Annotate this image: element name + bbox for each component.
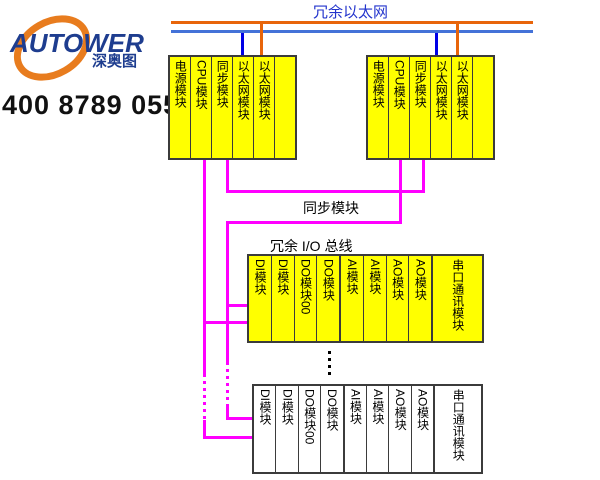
service-phone-number: 400 8789 055 bbox=[2, 90, 179, 121]
controller-rack-a: 电源模块 CPU模块 同步模块 以太网模块 以太网模块 bbox=[168, 55, 297, 160]
io-bus-b-vertical bbox=[226, 221, 229, 362]
sync-link-drop-a bbox=[226, 160, 229, 191]
module-label: AI模块 bbox=[349, 389, 362, 424]
module-label: DI模块 bbox=[276, 259, 289, 295]
module-label: 以太网模块 bbox=[258, 60, 271, 120]
ethernet-drop-blue-b bbox=[435, 33, 438, 56]
module-label: AI模块 bbox=[346, 259, 359, 294]
module-ethernet-a2: 以太网模块 bbox=[254, 57, 275, 158]
io-bus-a-vertical bbox=[203, 160, 206, 374]
module-label: 串口通讯模块 bbox=[452, 389, 465, 461]
module-ai-2: AI模块 bbox=[364, 256, 387, 341]
module-sync-a: 同步模块 bbox=[212, 57, 233, 158]
module-label: 电源模块 bbox=[174, 60, 187, 108]
rack-continuation-ellipsis bbox=[328, 351, 331, 378]
module-label: DI模块 bbox=[258, 389, 271, 425]
module-label: DO模块00 bbox=[299, 259, 312, 314]
module-do-1: DO模块00 bbox=[299, 386, 321, 472]
module-label: CPU模块 bbox=[195, 60, 208, 109]
redundant-ethernet-label: 冗余以太网 bbox=[313, 1, 388, 22]
ethernet-drop-orange-a bbox=[260, 24, 263, 56]
ethernet-drop-blue-a bbox=[241, 33, 244, 56]
ethernet-line-b bbox=[171, 30, 533, 33]
module-do-1: DO模块00 bbox=[295, 256, 318, 341]
io-bus-b-horizontal bbox=[226, 221, 402, 224]
ethernet-line-a bbox=[171, 21, 533, 24]
module-label: DO模块00 bbox=[303, 389, 316, 444]
module-ethernet-b1: 以太网模块 bbox=[431, 57, 452, 158]
module-label: 以太网模块 bbox=[237, 60, 250, 120]
module-label: 串口通讯模块 bbox=[451, 259, 464, 331]
module-power-b: 电源模块 bbox=[368, 57, 389, 158]
module-label: DI模块 bbox=[254, 259, 267, 295]
module-serial-comm: 串口通讯模块 bbox=[432, 256, 482, 341]
module-do-2: DO模块 bbox=[321, 386, 343, 472]
module-ethernet-b2: 以太网模块 bbox=[452, 57, 473, 158]
redundant-io-bus-label: 冗余 I/O 总线 bbox=[270, 236, 352, 256]
module-label: AO模块 bbox=[391, 259, 404, 300]
module-label: AO模块 bbox=[416, 389, 429, 430]
controller-rack-b: 电源模块 CPU模块 同步模块 以太网模块 以太网模块 bbox=[366, 55, 495, 160]
io-bus-a-branch-rack-bottom bbox=[203, 436, 254, 439]
module-label: AO模块 bbox=[414, 259, 427, 300]
module-power-a: 电源模块 bbox=[170, 57, 191, 158]
module-ai-1: AI模块 bbox=[344, 386, 367, 472]
module-label: 同步模块 bbox=[216, 60, 229, 108]
module-serial-comm: 串口通讯模块 bbox=[434, 386, 481, 472]
module-label: AI模块 bbox=[368, 259, 381, 294]
io-bus-b-drop bbox=[399, 160, 402, 224]
io-bus-b-vertical-dashed bbox=[226, 362, 229, 406]
module-ao-1: AO模块 bbox=[387, 256, 410, 341]
module-label: 同步模块 bbox=[414, 60, 427, 108]
module-di-2: DI模块 bbox=[276, 386, 298, 472]
module-ao-1: AO模块 bbox=[389, 386, 411, 472]
module-label: DO模块 bbox=[326, 389, 339, 431]
module-label: DI模块 bbox=[281, 389, 294, 425]
autower-logo: AUTOWER 深奥图 bbox=[0, 10, 165, 90]
module-label: 电源模块 bbox=[372, 60, 385, 108]
module-label: 以太网模块 bbox=[435, 60, 448, 120]
module-label: AI模块 bbox=[371, 389, 384, 424]
sync-link-horizontal bbox=[226, 190, 425, 193]
module-ao-2: AO模块 bbox=[409, 256, 432, 341]
module-ai-1: AI模块 bbox=[340, 256, 364, 341]
sync-link-label: 同步模块 bbox=[303, 198, 359, 218]
io-bus-b-branch-rack-top bbox=[226, 304, 249, 307]
module-label: CPU模块 bbox=[393, 60, 406, 109]
io-bus-b-branch-rack-bottom bbox=[226, 417, 254, 420]
module-empty-a bbox=[275, 57, 295, 158]
module-di-1: DI模块 bbox=[254, 386, 276, 472]
module-ao-2: AO模块 bbox=[412, 386, 434, 472]
module-sync-b: 同步模块 bbox=[410, 57, 431, 158]
module-do-2: DO模块 bbox=[317, 256, 340, 341]
module-ai-2: AI模块 bbox=[367, 386, 389, 472]
module-label: DO模块 bbox=[322, 259, 335, 301]
sync-link-drop-b bbox=[422, 160, 425, 190]
system-diagram: AUTOWER 深奥图 400 8789 055 冗余以太网 电源模块 CPU模… bbox=[0, 0, 600, 480]
module-cpu-a: CPU模块 bbox=[191, 57, 212, 158]
module-di-1: DI模块 bbox=[249, 256, 272, 341]
module-empty-b bbox=[473, 57, 493, 158]
io-rack-bottom: DI模块 DI模块 DO模块00 DO模块 AI模块 AI模块 AO模块 AO模… bbox=[252, 384, 483, 474]
logo-chinese-name: 深奥图 bbox=[92, 52, 137, 70]
io-rack-top: DI模块 DI模块 DO模块00 DO模块 AI模块 AI模块 AO模块 AO模… bbox=[247, 254, 484, 343]
module-label: AO模块 bbox=[394, 389, 407, 430]
module-cpu-b: CPU模块 bbox=[389, 57, 410, 158]
io-bus-a-vertical-dashed bbox=[203, 374, 206, 420]
ethernet-drop-orange-b bbox=[456, 24, 459, 56]
module-di-2: DI模块 bbox=[272, 256, 295, 341]
module-ethernet-a1: 以太网模块 bbox=[233, 57, 254, 158]
module-label: 以太网模块 bbox=[456, 60, 469, 120]
